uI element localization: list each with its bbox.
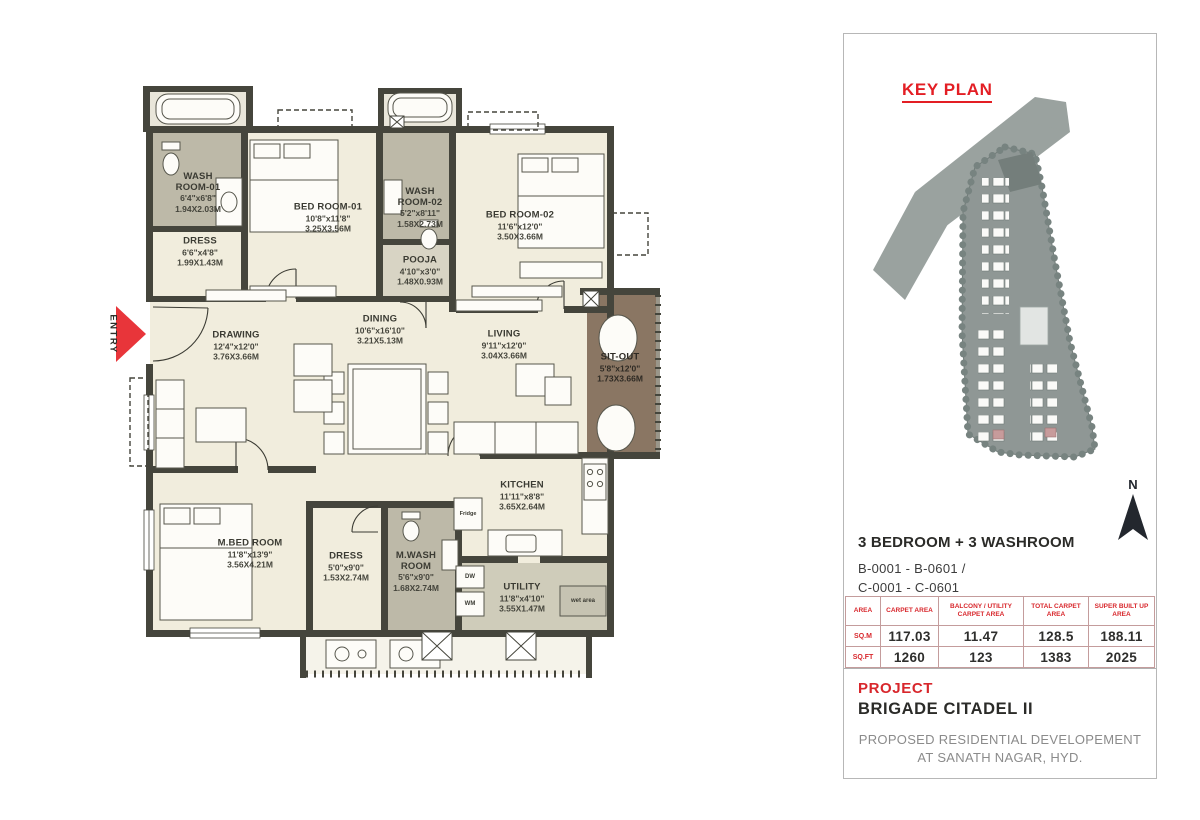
- area-table-value: 123: [939, 647, 1024, 668]
- area-table-value: 188.11: [1089, 626, 1155, 647]
- project-label: PROJECT: [858, 680, 933, 697]
- floor-plan: WASH ROOM-01 6'4"x6'8" 1.94X2.03M DRESS …: [100, 80, 720, 695]
- room-label-pooja: POOJA 4'10"x3'0" 1.48X0.93M: [380, 255, 460, 286]
- area-table-header: TOTAL CARPET AREA: [1024, 597, 1089, 626]
- highlighted-tower-c: [1045, 428, 1056, 437]
- room-label-drawing: DRAWING 12'4"x12'0" 3.76X3.66M: [191, 330, 281, 361]
- area-table-row-label: SQ.FT: [846, 647, 881, 668]
- unit-range-line1: B-0001 - B-0601 /: [858, 560, 966, 579]
- area-table-row-label: SQ.M: [846, 626, 881, 647]
- unit-range-line2: C-0001 - C-0601: [858, 579, 966, 598]
- area-table-header: AREA: [846, 597, 881, 626]
- room-label-utility: UTILITY 11'8"x4'10" 3.55X1.47M: [483, 582, 561, 613]
- washing-machine-label: WM: [465, 601, 476, 607]
- room-label-kitchen: KITCHEN 11'11"x8'8" 3.65X2.64M: [477, 480, 567, 511]
- fridge-label: Fridge: [460, 511, 477, 517]
- section-divider: [844, 668, 1156, 669]
- unit-range: B-0001 - B-0601 / C-0001 - C-0601: [858, 560, 966, 598]
- wet-area-label: wet area: [571, 598, 595, 604]
- entry-arrow-icon: [116, 306, 146, 362]
- north-arrow-icon: [1113, 492, 1153, 544]
- unit-type-heading: 3 BEDROOM + 3 WASHROOM: [858, 534, 1075, 551]
- key-plan-map: [870, 92, 1150, 482]
- room-label-bed-room-01: BED ROOM-01 10'8"x11'8" 3.25X3.56M: [283, 202, 373, 233]
- room-label-wash-room-01: WASH ROOM-01 6'4"x6'8" 1.94X2.03M: [166, 172, 230, 214]
- info-panel: KEY PLAN: [843, 33, 1157, 779]
- project-description: PROPOSED RESIDENTIAL DEVELOPEMENT AT SAN…: [844, 731, 1156, 766]
- project-description-line1: PROPOSED RESIDENTIAL DEVELOPEMENT: [844, 731, 1156, 749]
- project-description-line2: AT SANATH NAGAR, HYD.: [844, 749, 1156, 767]
- area-table-header: CARPET AREA: [881, 597, 939, 626]
- floor-plan-sheet: WASH ROOM-01 6'4"x6'8" 1.94X2.03M DRESS …: [0, 0, 1200, 820]
- area-table-value: 11.47: [939, 626, 1024, 647]
- room-label-dress-1: DRESS 6'6"x4'8" 1.99X1.43M: [160, 236, 240, 267]
- dishwasher-label: DW: [465, 574, 475, 580]
- north-label: N: [1111, 478, 1155, 492]
- north-indicator: N: [1111, 478, 1155, 550]
- room-label-m-wash-room: M.WASH ROOM 5'6"x9'0" 1.68X2.74M: [390, 551, 442, 593]
- area-table-value: 117.03: [881, 626, 939, 647]
- area-table: AREA CARPET AREA BALCONY / UTILITY CARPE…: [845, 596, 1155, 668]
- area-table-header: SUPER BUILT UP AREA: [1089, 597, 1155, 626]
- room-label-sit-out: SIT-OUT 5'8"x12'0" 1.73X3.66M: [589, 352, 651, 383]
- room-label-living: LIVING 9'11"x12'0" 3.04X3.66M: [459, 329, 549, 360]
- entry-label: ENTRY: [108, 314, 119, 353]
- area-table-value: 1260: [881, 647, 939, 668]
- room-label-dining: DINING 10'6"x16'10" 3.21X5.13M: [333, 314, 428, 345]
- area-table-header: BALCONY / UTILITY CARPET AREA: [939, 597, 1024, 626]
- project-name: BRIGADE CITADEL II: [858, 700, 1033, 719]
- room-label-m-bed-room: M.BED ROOM 11'8"x13'9" 3.56X4.21M: [205, 538, 295, 569]
- room-label-wash-room-02: WASH ROOM-02 5'2"x8'11" 1.58X2.73M: [391, 187, 449, 229]
- room-label-dress-2: DRESS 5'0"x9'0" 1.53X2.74M: [306, 551, 386, 582]
- area-table-value: 128.5: [1024, 626, 1089, 647]
- area-table-value: 1383: [1024, 647, 1089, 668]
- room-label-bed-room-02: BED ROOM-02 11'6"x12'0" 3.50X3.66M: [475, 210, 565, 241]
- highlighted-tower-b: [993, 430, 1004, 439]
- area-table-value: 2025: [1089, 647, 1155, 668]
